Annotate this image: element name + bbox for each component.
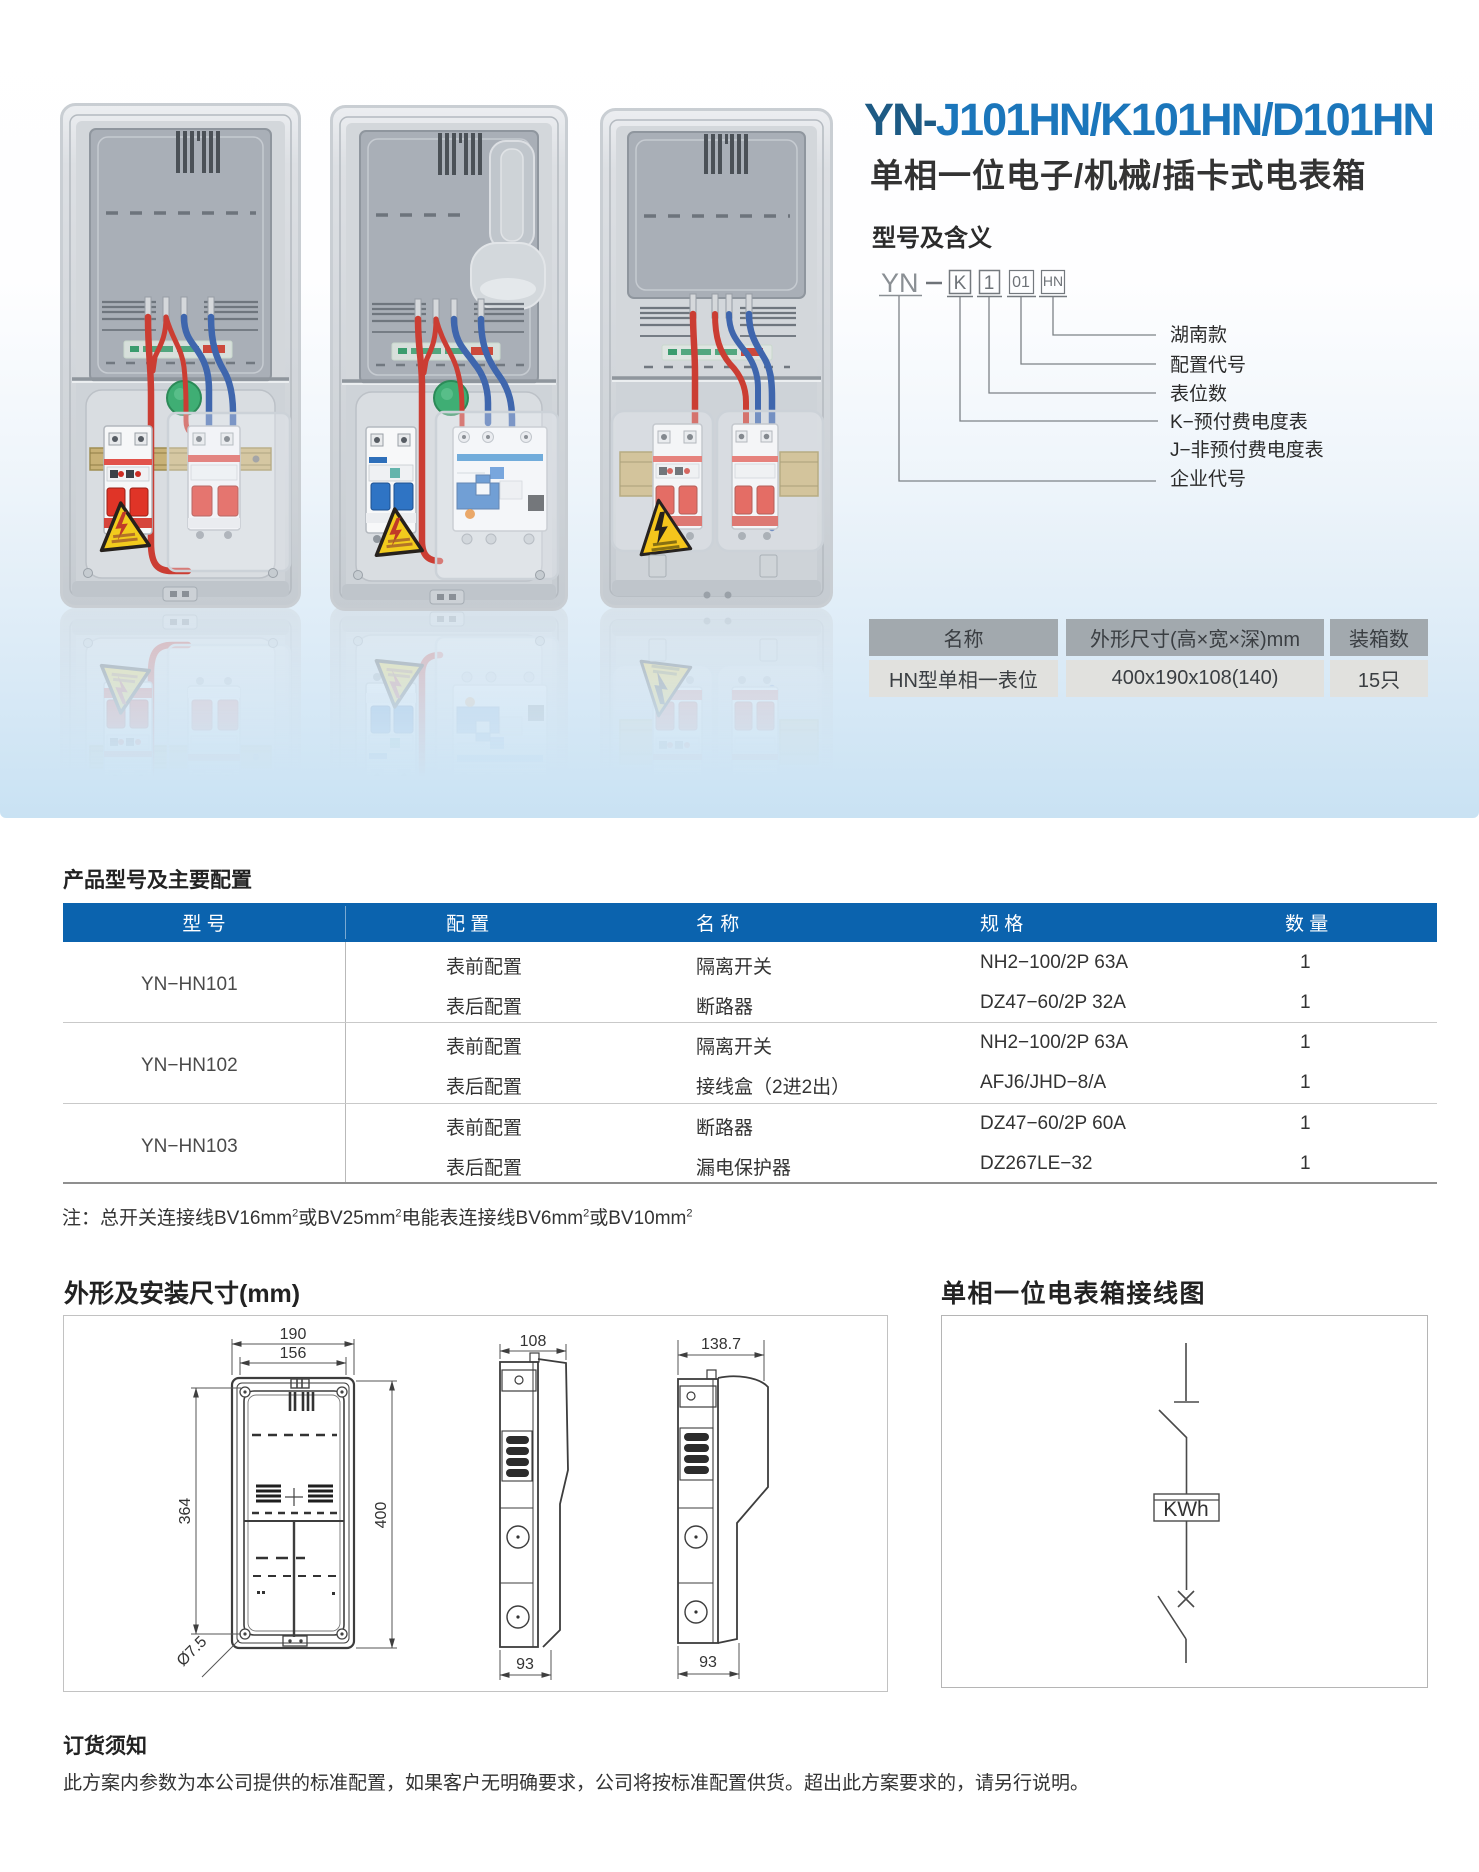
svg-text:湖南款: 湖南款: [1170, 324, 1227, 346]
svg-text:企业代号: 企业代号: [1170, 468, 1246, 490]
svg-text:93: 93: [516, 1656, 534, 1673]
svg-text:YN: YN: [881, 268, 919, 298]
svg-text:表位数: 表位数: [1170, 383, 1227, 405]
svg-text:364: 364: [177, 1498, 194, 1525]
svg-text:配置代号: 配置代号: [1170, 354, 1246, 376]
svg-text:93: 93: [699, 1654, 717, 1671]
svg-text:156: 156: [280, 1345, 307, 1362]
svg-text:138.7: 138.7: [701, 1336, 741, 1353]
svg-text:400: 400: [373, 1502, 390, 1529]
svg-text:HN: HN: [1043, 273, 1063, 289]
svg-text:J−非预付费电度表: J−非预付费电度表: [1170, 439, 1324, 461]
svg-text:Ø7.5: Ø7.5: [174, 1633, 211, 1670]
svg-text:K: K: [954, 273, 967, 294]
svg-text:K−预付费电度表: K−预付费电度表: [1170, 411, 1308, 433]
svg-text:KWh: KWh: [1163, 1498, 1209, 1521]
svg-text:190: 190: [280, 1326, 307, 1343]
svg-text:01: 01: [1012, 274, 1030, 291]
svg-text:1: 1: [984, 273, 995, 294]
svg-text:108: 108: [520, 1333, 547, 1350]
